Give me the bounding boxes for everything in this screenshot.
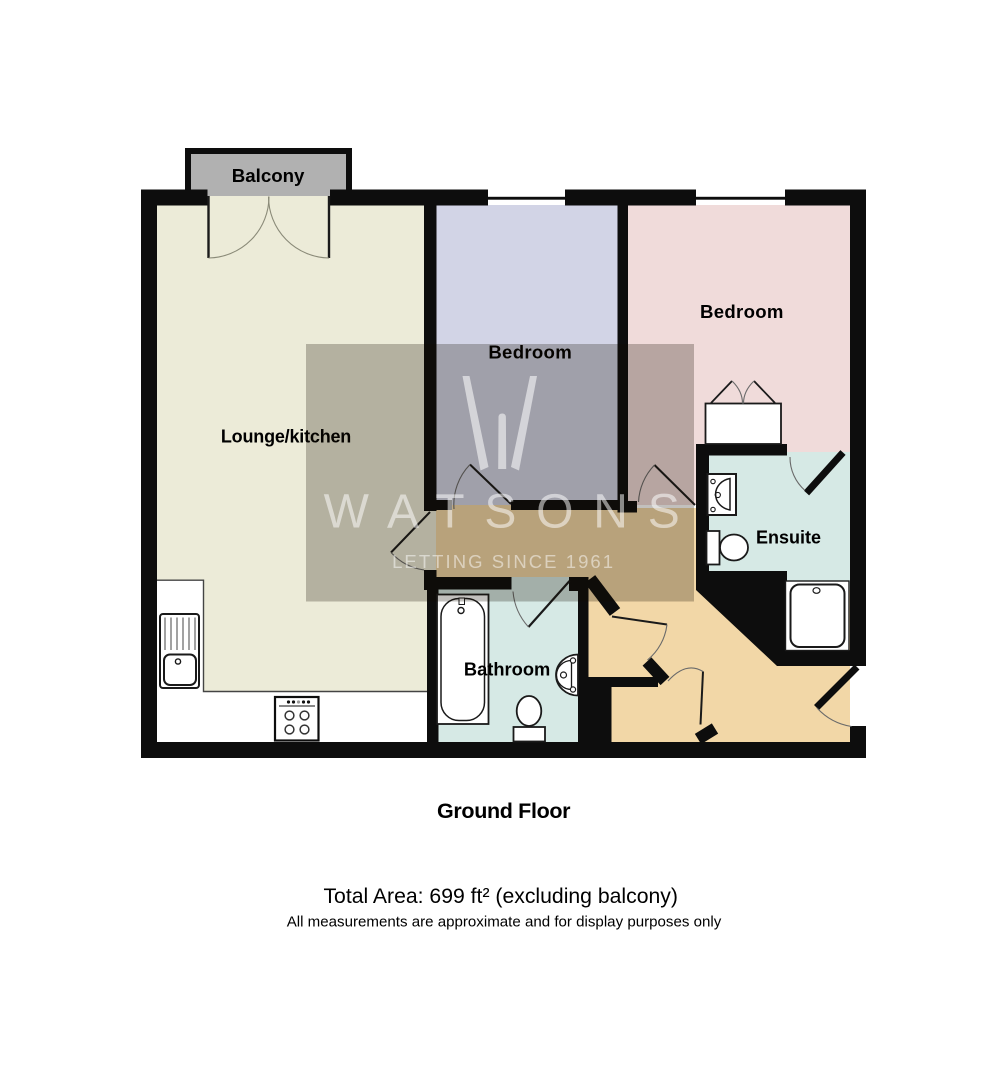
svg-text:Ensuite: Ensuite (756, 528, 821, 548)
svg-text:Balcony: Balcony (232, 165, 305, 186)
svg-text:Total Area: 699 ft² (excluding: Total Area: 699 ft² (excluding balcony) (323, 885, 678, 908)
svg-text:Bedroom: Bedroom (700, 301, 784, 322)
svg-text:Ground Floor: Ground Floor (437, 799, 571, 823)
svg-text:Bathroom: Bathroom (464, 658, 550, 679)
svg-text:All measurements are approxima: All measurements are approximate and for… (287, 914, 722, 931)
svg-text:LETTING SINCE 1961: LETTING SINCE 1961 (392, 551, 615, 572)
svg-text:WATSONS: WATSONS (324, 486, 700, 539)
